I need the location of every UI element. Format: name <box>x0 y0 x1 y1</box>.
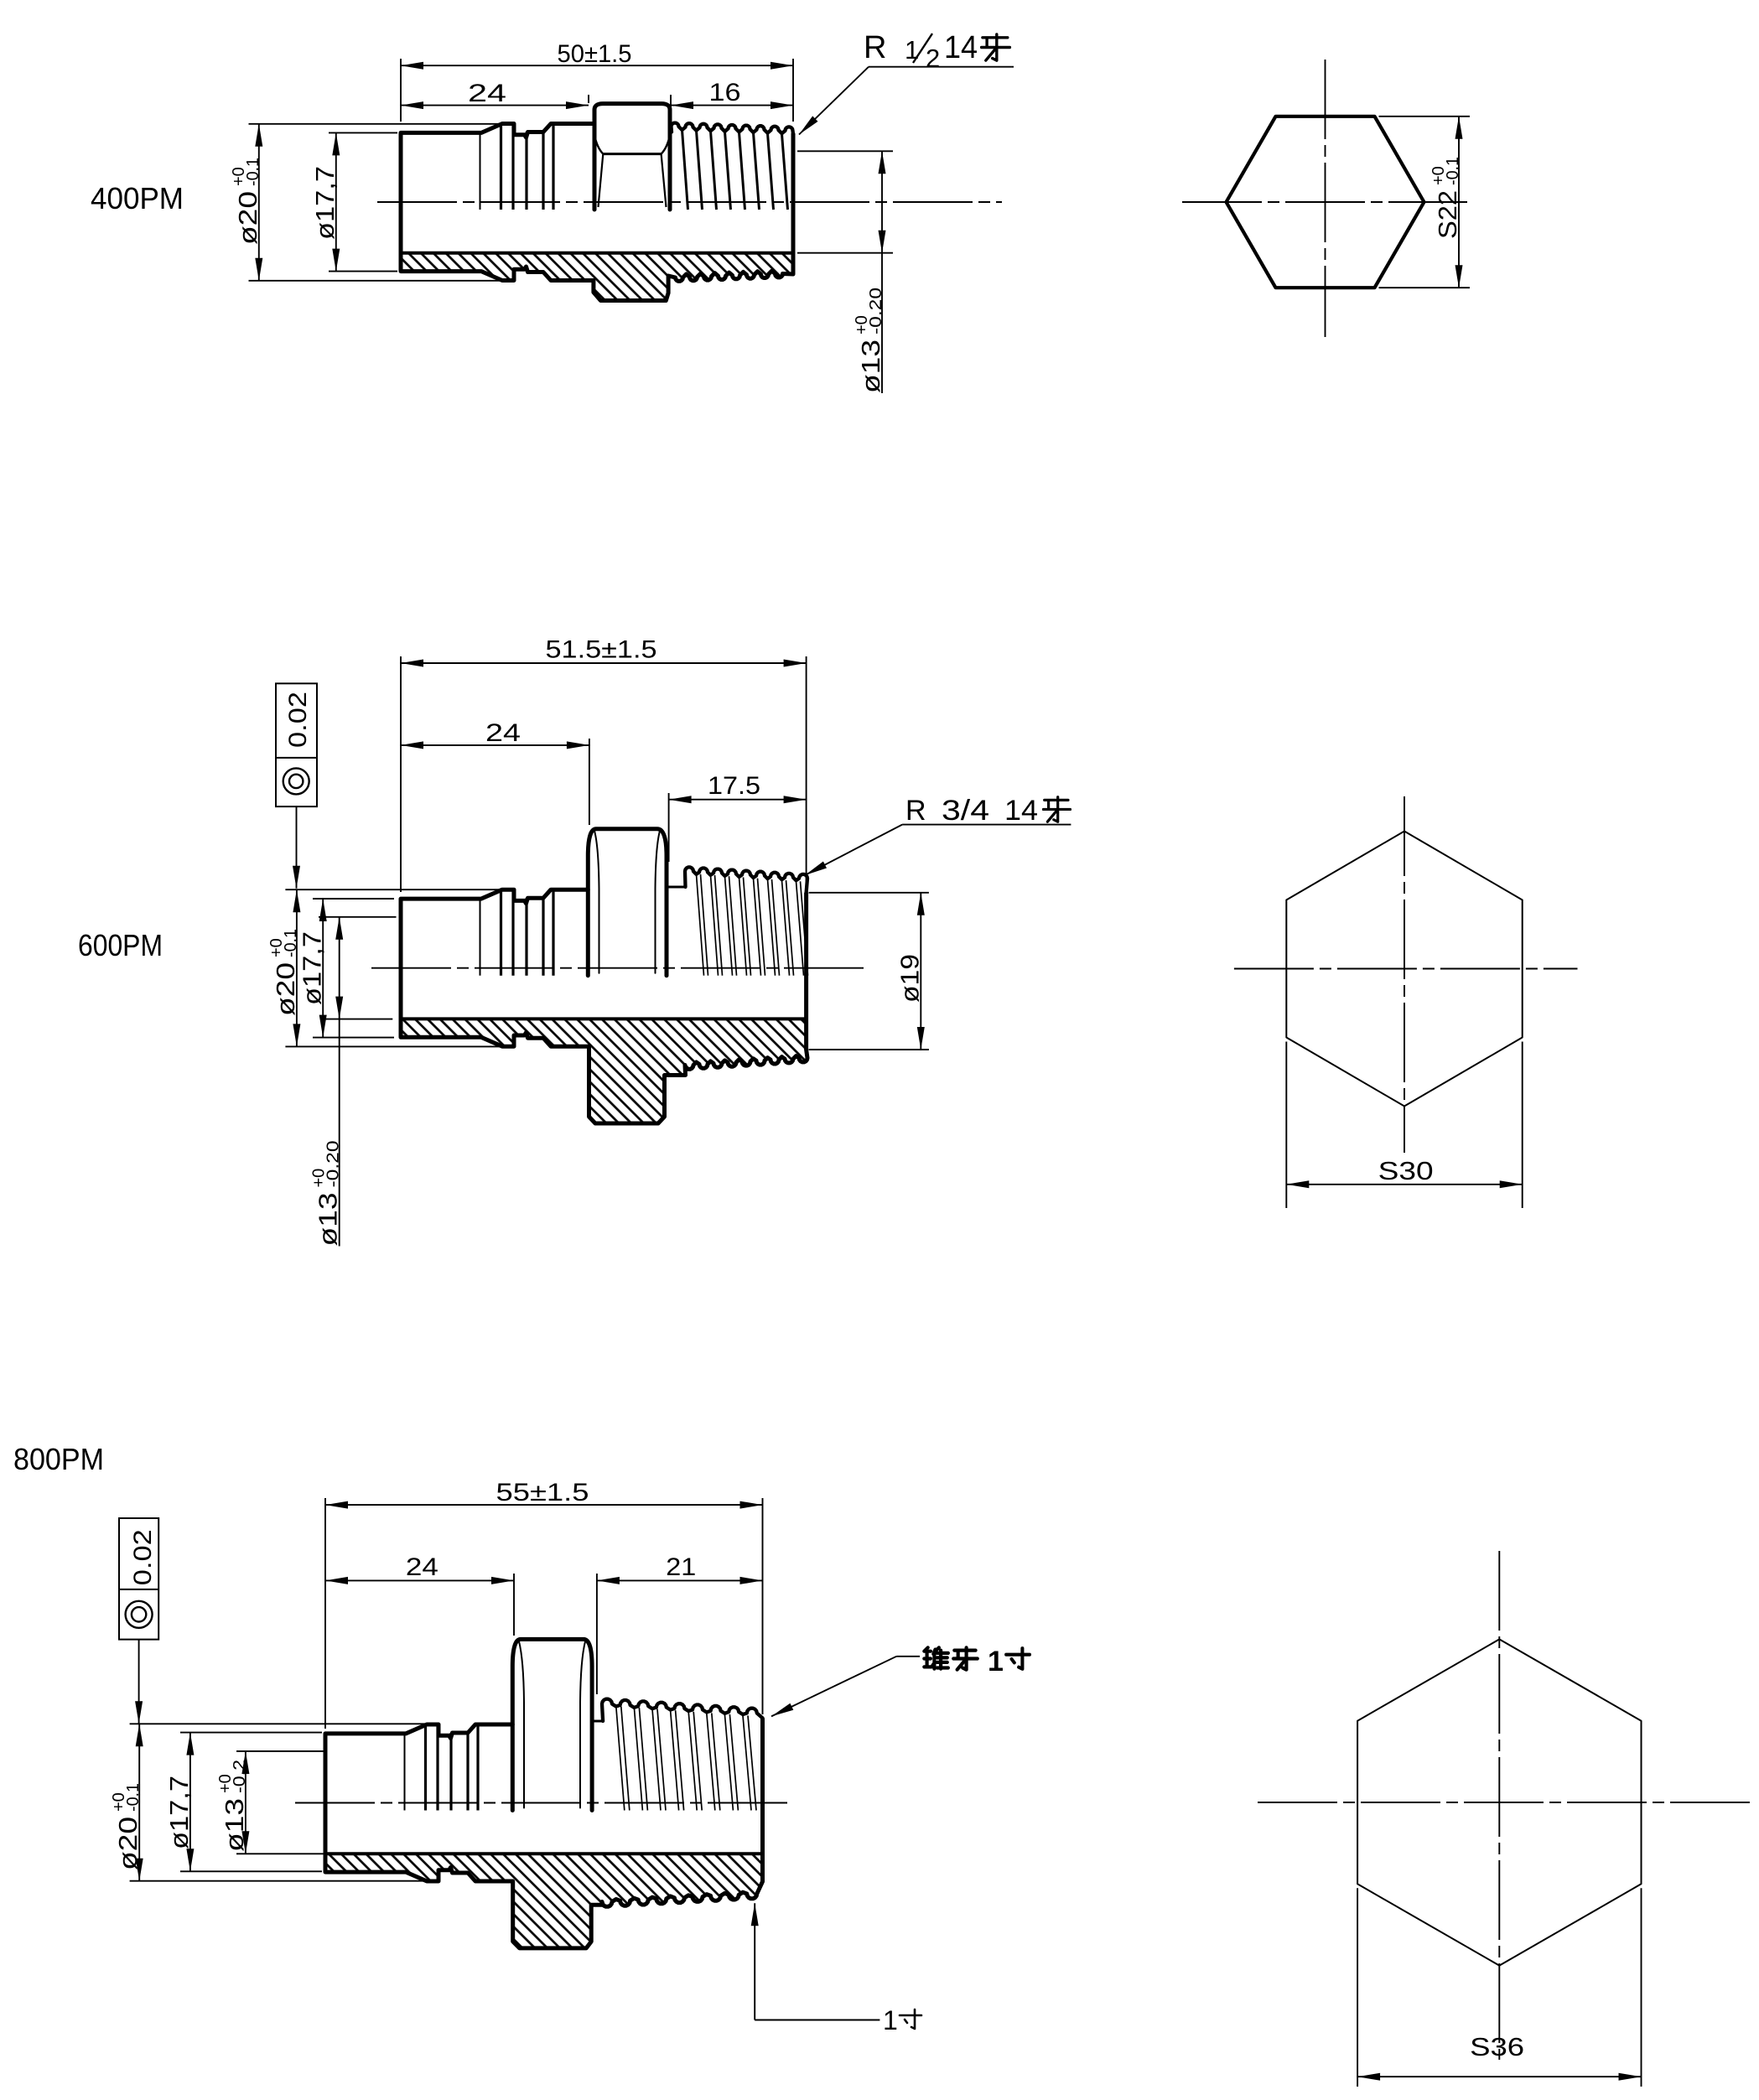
svg-text:ø17,7: ø17,7 <box>310 166 340 240</box>
svg-text:+0: +0 <box>230 167 248 186</box>
svg-text:14: 14 <box>944 30 978 65</box>
svg-text:+0: +0 <box>267 938 286 957</box>
svg-text:+0: +0 <box>310 1169 329 1188</box>
svg-text:+0: +0 <box>1430 166 1448 185</box>
svg-text:600PM: 600PM <box>78 928 163 962</box>
svg-text:14: 14 <box>1004 795 1038 827</box>
svg-text:ø13: ø13 <box>220 1798 249 1852</box>
svg-text:R: R <box>864 30 886 65</box>
svg-text:0.02: 0.02 <box>129 1529 157 1585</box>
svg-text:24: 24 <box>468 80 506 107</box>
svg-text:17.5: 17.5 <box>708 772 760 800</box>
svg-text:2: 2 <box>926 44 940 73</box>
svg-text:S22: S22 <box>1433 190 1462 239</box>
svg-text:400PM: 400PM <box>91 181 184 215</box>
svg-text:ø20: ø20 <box>233 191 262 245</box>
svg-text:ø19: ø19 <box>895 954 925 1003</box>
svg-text:55±1.5: 55±1.5 <box>496 1479 589 1506</box>
svg-text:3/4: 3/4 <box>942 795 989 827</box>
svg-text:R: R <box>905 795 926 827</box>
svg-text:51.5±1.5: 51.5±1.5 <box>546 636 657 664</box>
svg-text:16: 16 <box>709 79 741 106</box>
svg-text:1: 1 <box>905 35 919 65</box>
svg-text:+0: +0 <box>110 1792 128 1812</box>
svg-text:S36: S36 <box>1470 2032 1524 2061</box>
svg-text:+0: +0 <box>216 1774 235 1793</box>
svg-text:ø13: ø13 <box>856 340 885 393</box>
svg-text:ø17,7: ø17,7 <box>164 1776 194 1849</box>
svg-text:800PM: 800PM <box>13 1442 104 1476</box>
svg-text:1: 1 <box>988 1646 1004 1677</box>
svg-text:ø20: ø20 <box>113 1817 143 1870</box>
svg-text:24: 24 <box>406 1553 438 1581</box>
svg-text:ø13: ø13 <box>314 1193 343 1247</box>
svg-text:24: 24 <box>485 719 521 747</box>
svg-text:1: 1 <box>883 2005 898 2035</box>
svg-text:0.02: 0.02 <box>284 692 312 748</box>
svg-text:21: 21 <box>666 1553 696 1581</box>
svg-text:+0: +0 <box>853 315 871 334</box>
svg-text:ø17,7: ø17,7 <box>298 931 327 1005</box>
svg-text:50±1.5: 50±1.5 <box>558 40 632 68</box>
svg-text:ø20: ø20 <box>271 962 300 1016</box>
svg-text:S30: S30 <box>1378 1156 1434 1185</box>
